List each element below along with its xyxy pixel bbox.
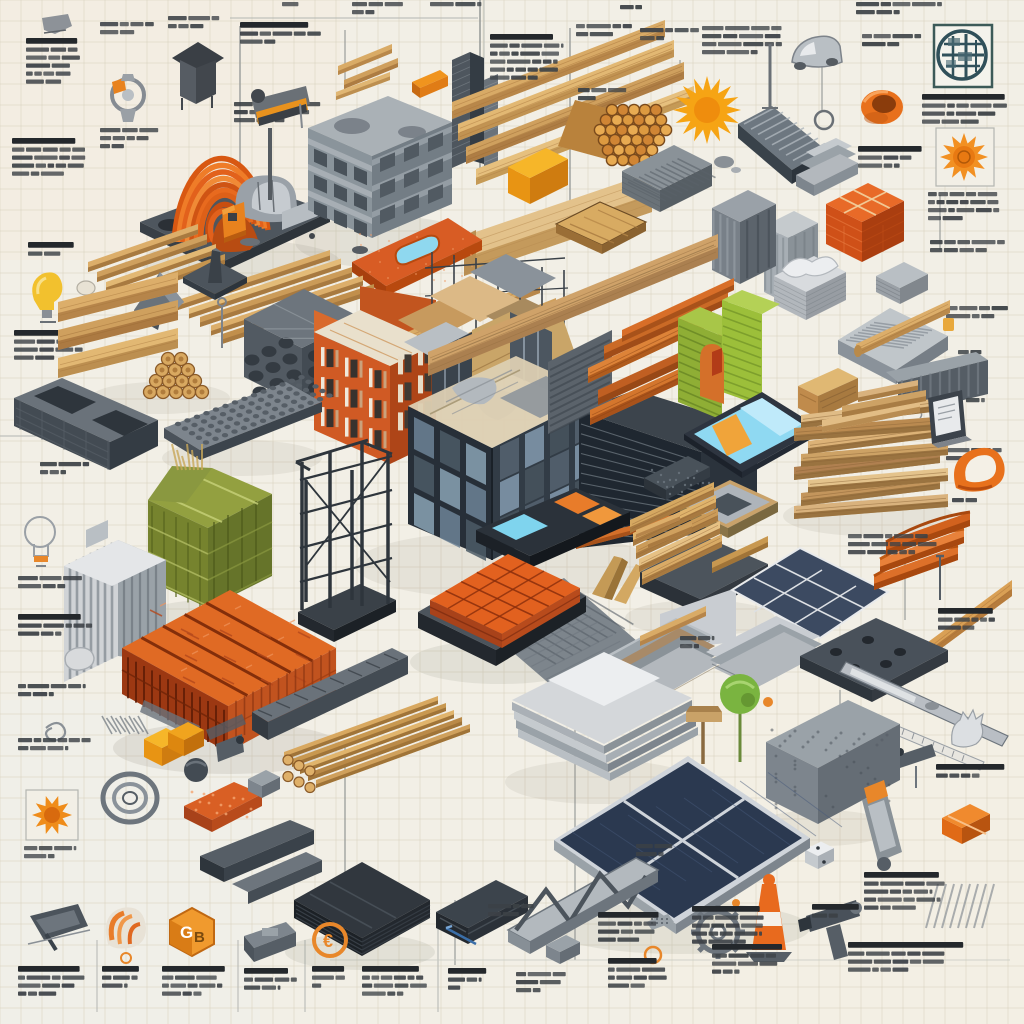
svg-text:B: B [194,929,205,946]
svg-text:€: € [323,931,333,951]
svg-text:G: G [180,923,193,942]
